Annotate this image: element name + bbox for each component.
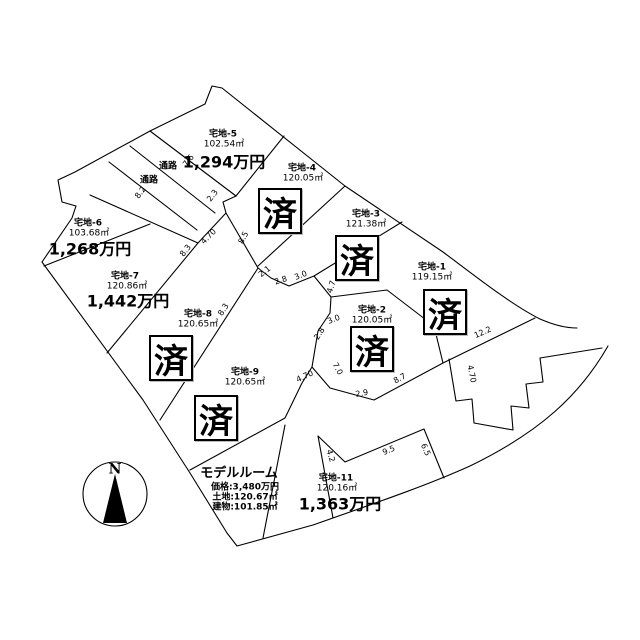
plot-3-sold-badge: 済 [335,235,379,281]
plot-4-area: 120.05㎡ [283,174,324,183]
plot-3-area: 121.38㎡ [346,220,387,229]
plot-11-area: 120.16㎡ [317,484,358,493]
plot-7-price: 1,442万円 [87,294,170,311]
subdivision-map: 宅地-5 102.54㎡ 1,294万円 宅地-4 120.05㎡ 済 宅地-3… [0,0,640,640]
passage-line-3 [109,162,197,230]
plot-4-sold-badge: 済 [258,188,302,234]
compass-needle [103,474,127,523]
plot-5-area: 102.54㎡ [204,140,245,149]
model-room-building: 建物:101.85㎡ [212,503,277,512]
compass-north-label: N [109,463,122,478]
plot-7-area: 120.86㎡ [107,282,148,291]
plot-1-area: 119.15㎡ [412,273,453,282]
east-jagged [474,348,602,430]
passage-label-2: 通路 [140,176,158,185]
model-room-title: モデルルーム [200,467,278,481]
plot-6-area: 103.68㎡ [69,229,110,238]
plot-1-sold-badge: 済 [423,289,467,335]
plot-6-price: 1,268万円 [49,242,132,259]
plot-9-area: 120.65㎡ [225,378,266,387]
plot-2-sold-badge: 済 [350,326,394,372]
passage-label-1: 通路 [159,162,177,171]
plot-8-sold-badge: 済 [149,335,193,381]
plot-9-sold-badge: 済 [194,395,238,441]
plot-11-price: 1,363万円 [299,497,382,514]
plot-8-area: 120.65㎡ [178,320,219,329]
parcel-lines [0,0,640,640]
